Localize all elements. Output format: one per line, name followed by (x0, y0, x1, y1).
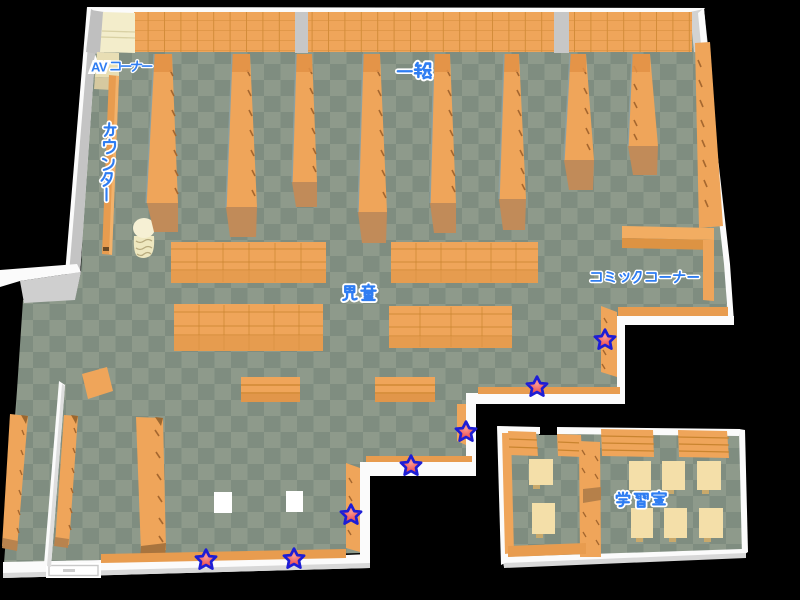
svg-text:AV: AV (91, 60, 108, 75)
